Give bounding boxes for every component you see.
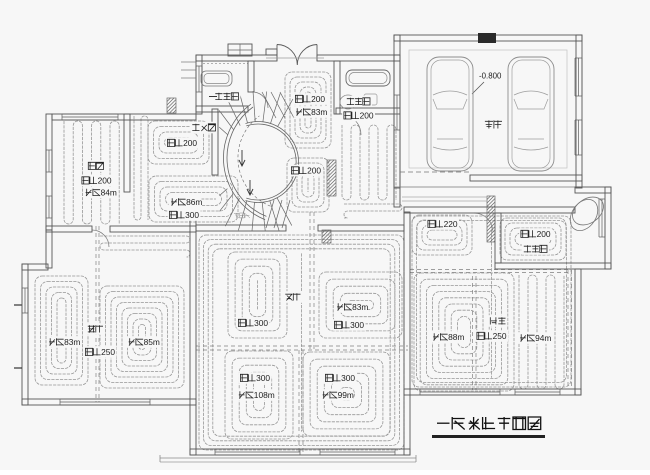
- svg-text:200: 200: [360, 111, 374, 121]
- svg-text:99m: 99m: [338, 390, 354, 400]
- svg-text:300: 300: [185, 210, 199, 220]
- svg-text:-0.800: -0.800: [479, 71, 502, 80]
- svg-text:86m: 86m: [186, 197, 202, 207]
- svg-text:88m: 88m: [448, 332, 464, 342]
- svg-text:250: 250: [101, 347, 115, 357]
- svg-text:83m: 83m: [64, 337, 80, 347]
- svg-text:83m: 83m: [311, 107, 327, 117]
- svg-text:300: 300: [350, 320, 364, 330]
- svg-text:84m: 84m: [101, 188, 117, 198]
- svg-text:200: 200: [307, 166, 321, 176]
- svg-text:83m: 83m: [352, 302, 368, 312]
- svg-text:85m: 85m: [144, 337, 160, 347]
- svg-text:200: 200: [537, 229, 551, 239]
- svg-text:200: 200: [311, 94, 325, 104]
- svg-text:108m: 108m: [254, 390, 275, 400]
- svg-text:300: 300: [256, 373, 270, 383]
- svg-text:94m: 94m: [535, 333, 551, 343]
- svg-text:300: 300: [254, 318, 268, 328]
- svg-text:200: 200: [98, 176, 112, 186]
- svg-text:250: 250: [493, 331, 507, 341]
- svg-text:200: 200: [183, 138, 197, 148]
- svg-text:300: 300: [341, 373, 355, 383]
- svg-text:220: 220: [444, 219, 458, 229]
